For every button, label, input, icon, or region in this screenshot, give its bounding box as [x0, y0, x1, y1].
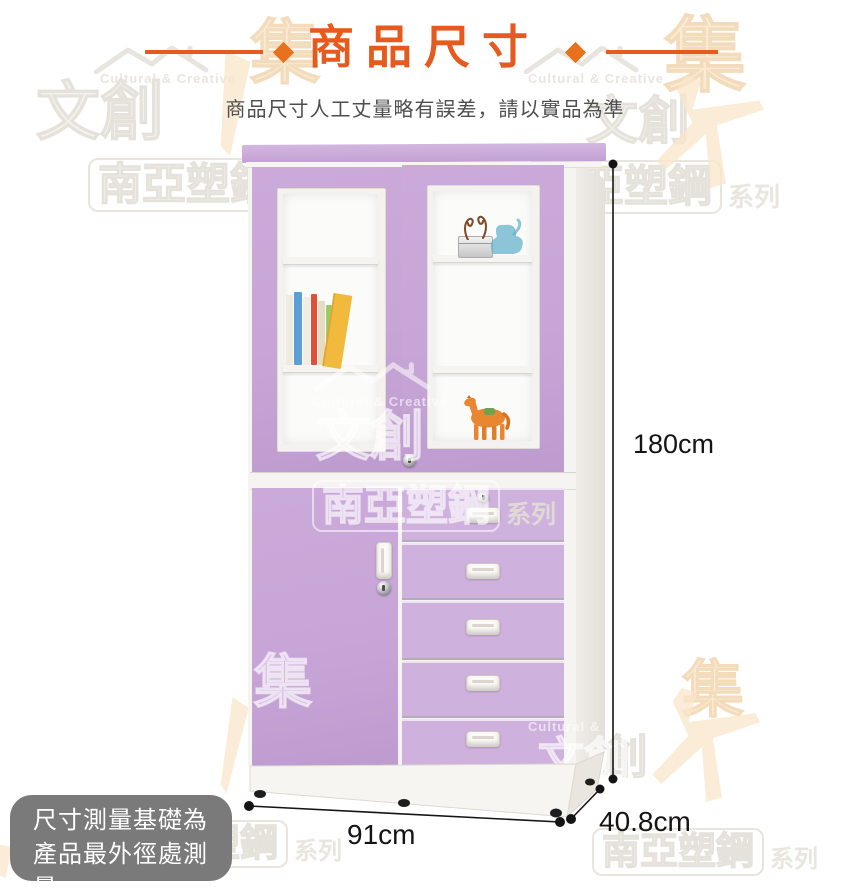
measurement-note: 尺寸測量基礎為 產品最外徑處測量	[10, 795, 232, 881]
keyhole-lock	[377, 581, 391, 595]
note-line-2: 產品最外徑處測量	[33, 838, 232, 894]
curly-ornament-icon	[462, 212, 475, 240]
lower-cabinet-door	[252, 488, 398, 766]
shelf	[283, 257, 378, 265]
cabinet-top-panel	[242, 143, 606, 163]
drawer-handle	[466, 563, 500, 579]
shelf	[433, 366, 532, 374]
drawer-handle	[466, 675, 500, 691]
door-handle	[376, 542, 392, 579]
keyhole-lock	[403, 454, 416, 467]
height-dimension-label: 180cm	[633, 429, 714, 460]
keyhole-lock	[478, 492, 489, 503]
blue-bird-figurine	[487, 218, 527, 256]
drawer-handle	[466, 731, 500, 747]
cabinet-side-panel	[575, 161, 605, 765]
cabinet-illustration	[0, 0, 850, 894]
width-dimension-label: 91cm	[347, 819, 415, 851]
horse-figurine	[459, 395, 513, 442]
depth-dimension-label: 40.8cm	[599, 806, 691, 838]
drawer-handle	[466, 507, 500, 523]
drawer-handle	[466, 619, 500, 635]
product-dimension-page: Cultural & Creative 文創 南亞塑鋼 系列 集 Cultura…	[0, 0, 850, 894]
note-line-1: 尺寸測量基礎為	[33, 804, 232, 838]
